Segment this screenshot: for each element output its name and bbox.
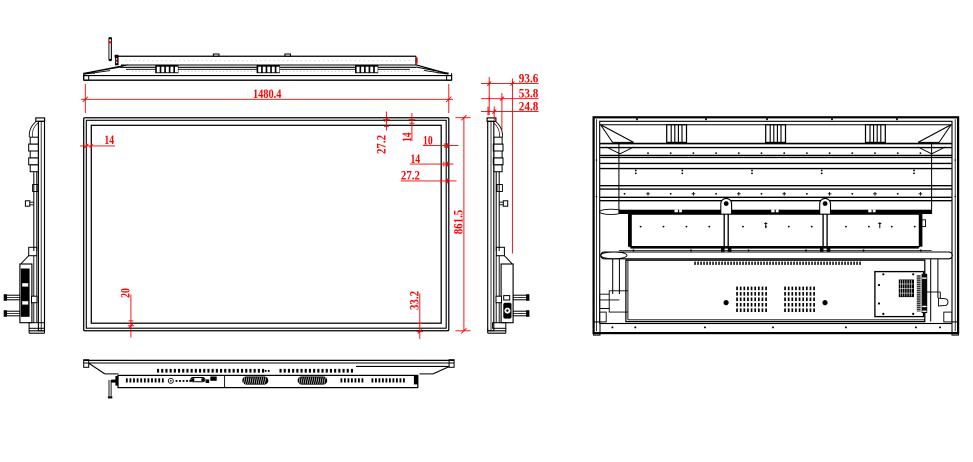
svg-text:33.2: 33.2 [407,291,422,310]
svg-text:14: 14 [410,151,420,166]
svg-text:861.5: 861.5 [451,209,466,234]
svg-text:14: 14 [104,132,114,147]
svg-text:14: 14 [399,132,414,142]
svg-text:24.8: 24.8 [519,98,539,113]
svg-text:10: 10 [423,132,433,147]
svg-text:1480.4: 1480.4 [253,86,282,101]
svg-text:27.2: 27.2 [373,135,388,154]
svg-text:20: 20 [117,288,132,298]
svg-text:93.6: 93.6 [519,70,539,85]
svg-text:27.2: 27.2 [401,168,420,183]
